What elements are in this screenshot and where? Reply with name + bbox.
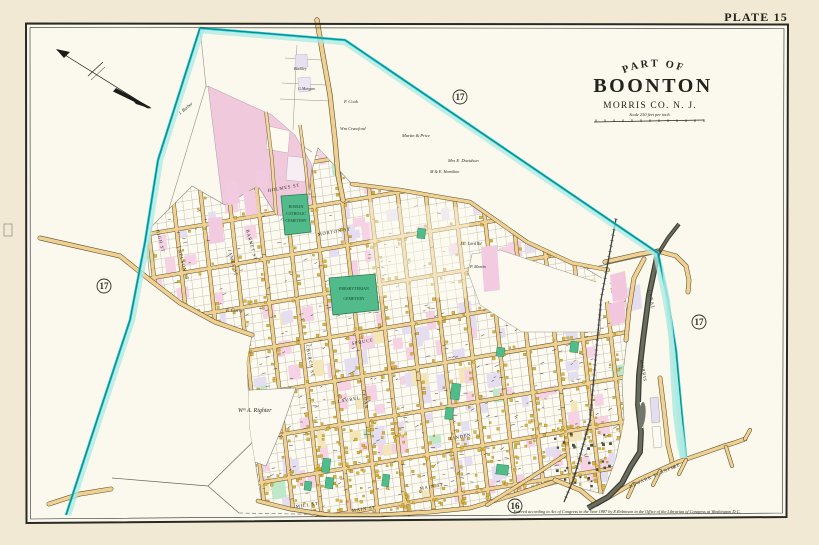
svg-text:G.Morgan: G.Morgan [298,86,315,91]
svg-text:17: 17 [695,317,705,327]
svg-text:CEMETERY: CEMETERY [285,218,306,223]
svg-text:Entered according to Act of Co: Entered according to Act of Congress in … [512,509,740,514]
svg-text:Wm Crawford: Wm Crawford [340,126,366,131]
svg-text:17: 17 [456,92,466,102]
svg-text:CEMETERY: CEMETERY [343,296,364,301]
svg-text:J.C. Lord Rd: J.C. Lord Rd [460,241,482,246]
svg-text:PRESBYTERIAN: PRESBYTERIAN [339,286,369,291]
svg-text:17: 17 [100,281,110,291]
svg-text:F. Curry: F. Curry [225,309,244,314]
svg-text:Buckley: Buckley [294,66,307,71]
svg-text:PLATE 15: PLATE 15 [724,10,788,24]
svg-text:Wᵐ A. Righter: Wᵐ A. Righter [238,408,272,414]
svg-text:Martin & Price: Martin & Price [401,133,430,138]
svg-text:F. Cook: F. Cook [343,99,359,104]
svg-text:Scale 230 feet per inch.: Scale 230 feet per inch. [629,112,670,117]
svg-text:P. Martin: P. Martin [469,264,486,269]
svg-text:MORRIS CO. N. J.: MORRIS CO. N. J. [603,101,697,111]
svg-text:BOONTON: BOONTON [593,75,712,97]
svg-text:Mrs E. Davidson: Mrs E. Davidson [447,158,479,163]
svg-text:CATHOLIC: CATHOLIC [286,211,306,216]
svg-text:M & E. Hamilton: M & E. Hamilton [429,169,459,174]
svg-text:ROMAN: ROMAN [289,204,304,209]
